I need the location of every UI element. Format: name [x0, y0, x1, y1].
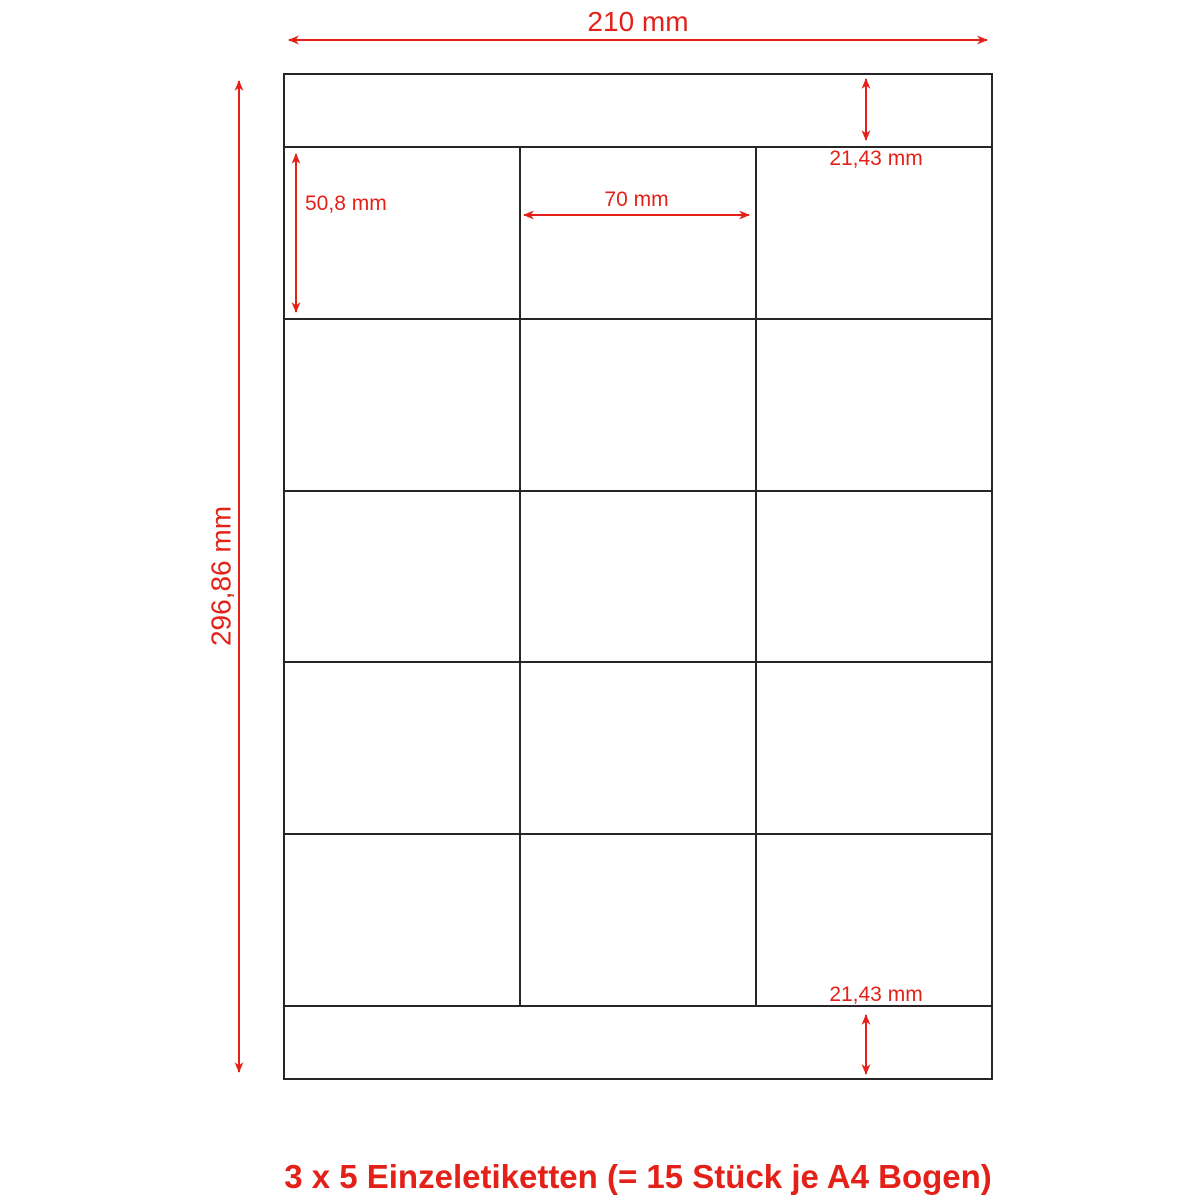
label-width-dimension-label: 70 mm — [518, 188, 755, 211]
grid-line-horizontal — [285, 318, 991, 320]
sheet-width-dimension-label: 210 mm — [283, 7, 993, 38]
grid-line-horizontal — [285, 833, 991, 835]
grid-line-horizontal — [285, 661, 991, 663]
bottom-margin-dimension-label: 21,43 mm — [806, 983, 946, 1006]
grid-line-vertical — [519, 146, 521, 1006]
diagram-caption: 3 x 5 Einzeletiketten (= 15 Stück je A4 … — [283, 1158, 993, 1196]
label-sheet — [283, 73, 993, 1080]
grid-line-vertical — [755, 146, 757, 1006]
sheet-height-dimension-label: 296,86 mm — [207, 506, 238, 646]
grid-line-horizontal — [285, 490, 991, 492]
label-height-dimension-label: 50,8 mm — [305, 192, 387, 215]
top-margin-dimension-label: 21,43 mm — [806, 147, 946, 170]
label-sheet-diagram: 210 mm 296,86 mm 21,43 mm 50,8 mm 70 mm … — [0, 0, 1200, 1200]
